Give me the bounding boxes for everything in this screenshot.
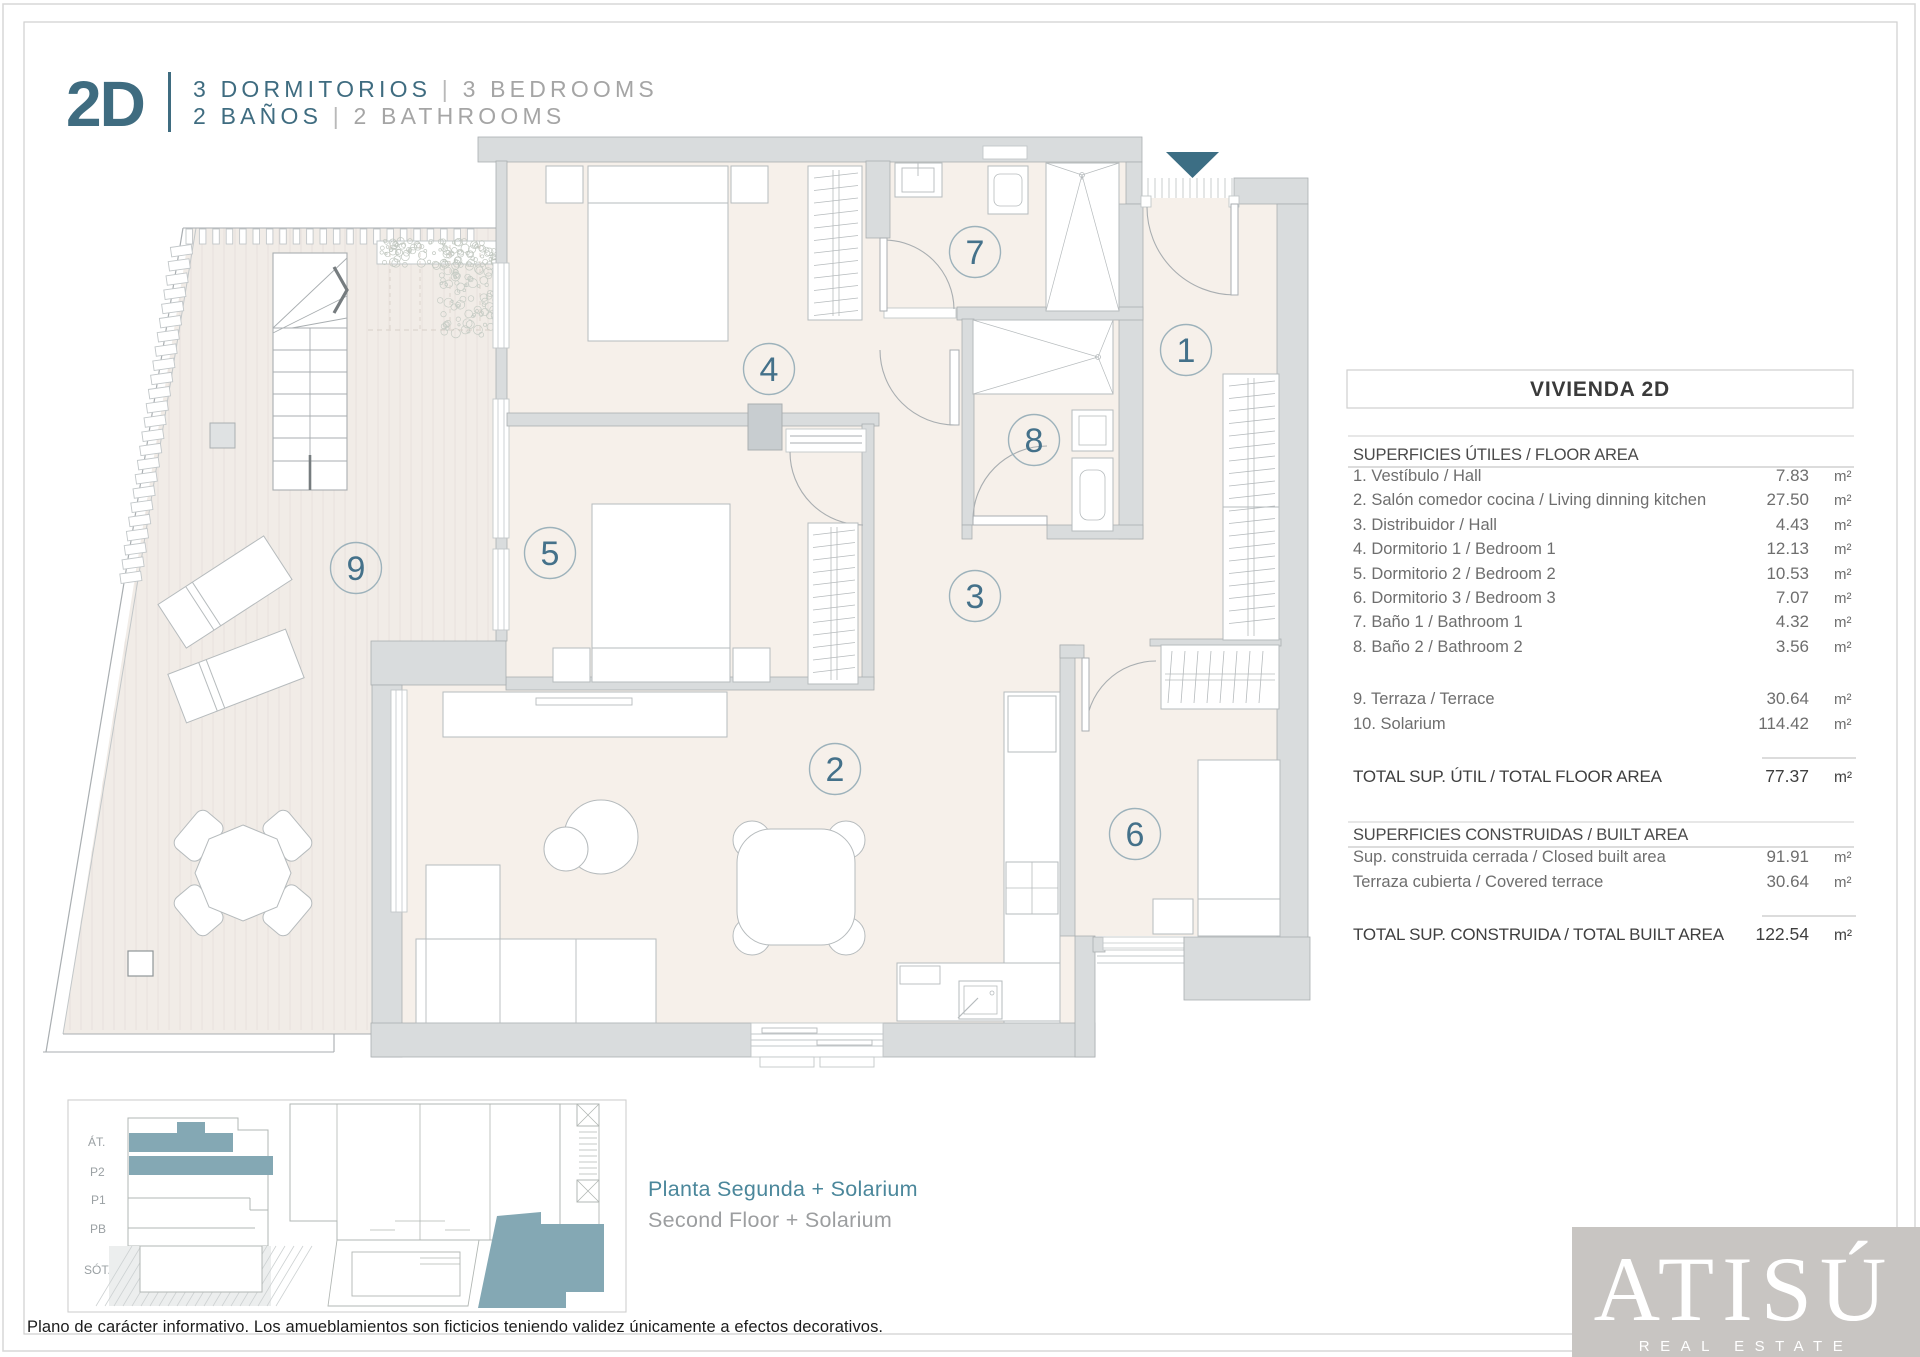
svg-text:7. Baño 1 / Bathroom 1: 7. Baño 1 / Bathroom 1: [1353, 613, 1523, 631]
svg-text:VIVIENDA 2D: VIVIENDA 2D: [1530, 378, 1670, 401]
svg-text:122.54: 122.54: [1755, 924, 1809, 944]
svg-text:10.53: 10.53: [1766, 564, 1809, 583]
svg-text:SUPERFICIES CONSTRUIDAS / BUIL: SUPERFICIES CONSTRUIDAS / BUILT AREA: [1353, 826, 1688, 844]
svg-text:3.56: 3.56: [1776, 637, 1809, 656]
svg-text:P1: P1: [91, 1193, 106, 1207]
svg-text:5. Dormitorio 2 / Bedroom 2: 5. Dormitorio 2 / Bedroom 2: [1353, 565, 1556, 583]
svg-text:6. Dormitorio 3 / Bedroom 3: 6. Dormitorio 3 / Bedroom 3: [1353, 589, 1556, 607]
svg-text:1: 1: [1177, 332, 1196, 370]
svg-text:30.64: 30.64: [1766, 689, 1809, 708]
svg-text:m²: m²: [1834, 716, 1852, 733]
svg-text:m²: m²: [1834, 769, 1852, 786]
svg-text:6: 6: [1126, 816, 1145, 854]
svg-text:SUPERFICIES ÚTILES / FLOOR ARE: SUPERFICIES ÚTILES / FLOOR AREA: [1353, 445, 1639, 464]
svg-text:m²: m²: [1834, 614, 1852, 631]
svg-text:m²: m²: [1834, 517, 1852, 534]
svg-text:ATISÚ: ATISÚ: [1594, 1238, 1895, 1340]
svg-text:4. Dormitorio 1 / Bedroom 1: 4. Dormitorio 1 / Bedroom 1: [1353, 540, 1556, 558]
svg-text:4.32: 4.32: [1776, 612, 1809, 631]
svg-text:m²: m²: [1834, 590, 1852, 607]
svg-text:Planta Segunda + Solarium: Planta Segunda + Solarium: [648, 1177, 918, 1201]
svg-text:3 DORMITORIOS | 3 BEDROOMS: 3 DORMITORIOS | 3 BEDROOMS: [193, 76, 658, 102]
svg-text:m²: m²: [1834, 691, 1852, 708]
svg-text:12.13: 12.13: [1766, 539, 1809, 558]
svg-text:4.43: 4.43: [1776, 515, 1809, 534]
svg-text:2D: 2D: [66, 68, 144, 140]
svg-text:5: 5: [541, 535, 560, 573]
svg-text:PB: PB: [90, 1222, 106, 1236]
svg-text:7.07: 7.07: [1776, 588, 1809, 607]
svg-text:SÓT.: SÓT.: [84, 1262, 111, 1277]
svg-text:m²: m²: [1834, 541, 1852, 558]
svg-text:9: 9: [347, 550, 366, 588]
svg-text:9. Terraza / Terrace: 9. Terraza / Terrace: [1353, 690, 1495, 708]
svg-text:Sup. construida cerrada / Clos: Sup. construida cerrada / Closed built a…: [1353, 848, 1667, 866]
svg-text:91.91: 91.91: [1766, 847, 1809, 866]
svg-text:3: 3: [966, 578, 985, 616]
svg-text:8: 8: [1025, 422, 1044, 460]
svg-text:2: 2: [826, 751, 845, 789]
svg-text:30.64: 30.64: [1766, 872, 1809, 891]
svg-text:REAL ESTATE: REAL ESTATE: [1639, 1338, 1853, 1355]
svg-text:Terraza cubierta / Covered ter: Terraza cubierta / Covered terrace: [1353, 873, 1603, 891]
svg-text:7.83: 7.83: [1776, 466, 1809, 485]
svg-text:1. Vestíbulo / Hall: 1. Vestíbulo / Hall: [1353, 467, 1481, 485]
svg-text:7: 7: [966, 234, 985, 272]
svg-text:3. Distribuidor / Hall: 3. Distribuidor / Hall: [1353, 516, 1497, 534]
svg-text:4: 4: [760, 351, 779, 389]
svg-text:Plano de carácter informativo.: Plano de carácter informativo. Los amueb…: [27, 1318, 883, 1336]
svg-text:m²: m²: [1834, 874, 1852, 891]
svg-text:ÁT.: ÁT.: [88, 1134, 105, 1149]
svg-text:114.42: 114.42: [1758, 714, 1809, 733]
svg-text:8. Baño 2 / Bathroom 2: 8. Baño 2 / Bathroom 2: [1353, 638, 1523, 656]
svg-text:Second Floor + Solarium: Second Floor + Solarium: [648, 1208, 892, 1232]
svg-text:2 BAÑOS | 2 BATHROOMS: 2 BAÑOS | 2 BATHROOMS: [193, 103, 565, 129]
svg-text:m²: m²: [1834, 566, 1852, 583]
svg-text:m²: m²: [1834, 468, 1852, 485]
svg-text:P2: P2: [90, 1165, 105, 1179]
svg-text:TOTAL SUP. CONSTRUIDA / TOTAL: TOTAL SUP. CONSTRUIDA / TOTAL BUILT AREA: [1353, 925, 1725, 944]
svg-text:m²: m²: [1834, 849, 1852, 866]
svg-text:TOTAL SUP. ÚTIL / TOTAL FLOOR: TOTAL SUP. ÚTIL / TOTAL FLOOR AREA: [1353, 767, 1663, 786]
svg-text:77.37: 77.37: [1765, 766, 1809, 786]
svg-text:m²: m²: [1834, 639, 1852, 656]
svg-text:m²: m²: [1834, 927, 1852, 944]
svg-text:10. Solarium: 10. Solarium: [1353, 715, 1446, 733]
svg-text:2. Salón comedor cocina / Livi: 2. Salón comedor cocina / Living dinning…: [1353, 491, 1706, 509]
svg-text:27.50: 27.50: [1766, 490, 1809, 509]
svg-text:m²: m²: [1834, 492, 1852, 509]
